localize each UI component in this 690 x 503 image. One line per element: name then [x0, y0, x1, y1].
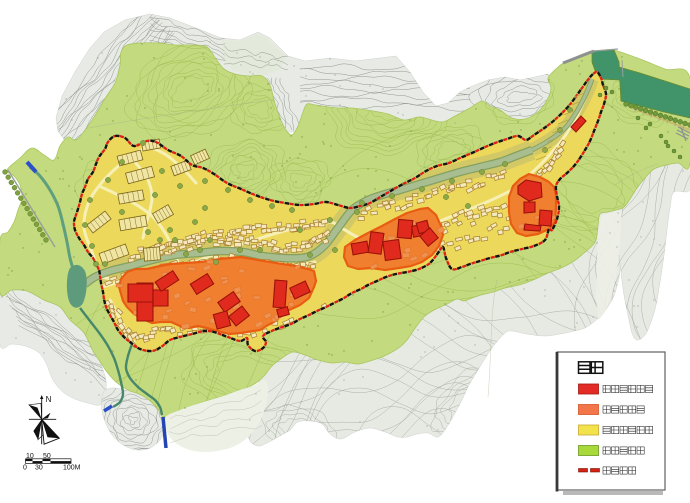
svg-text:100M: 100M: [63, 465, 81, 472]
svg-text:30: 30: [35, 465, 43, 472]
svg-text:0: 0: [23, 465, 27, 472]
svg-text:N: N: [46, 395, 52, 404]
